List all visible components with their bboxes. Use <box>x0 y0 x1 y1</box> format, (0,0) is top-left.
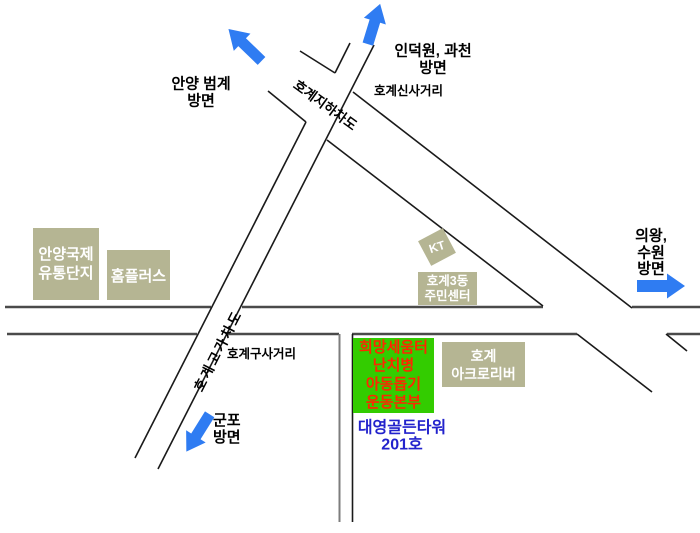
direction-label-anyang-beomgye: 안양 범계 방면 <box>171 77 230 110</box>
direction-label-uiwang-suwon: 의왕, 수원 방면 <box>627 228 676 278</box>
arrow-up-indeogwon-icon <box>357 1 391 48</box>
destination-address: 대영골든타워 201호 <box>358 421 446 454</box>
directions-map: 안양 범계 방면 인덕원, 과천 방면 의왕, 수원 방면 군포 방면 호계신사… <box>0 0 700 533</box>
building-kt-label: KT <box>427 238 447 256</box>
building-anyang-intl-complex: 안양국제 유통단지 <box>33 228 99 300</box>
building-homeplus: 홈플러스 <box>107 250 170 300</box>
direction-label-indeogwon-gwacheon: 인덕원, 과천 방면 <box>394 44 471 77</box>
direction-label-gunpo: 군포 방면 <box>213 413 241 446</box>
destination-box: 희망세움터 난치병 아동돕기 운동본부 <box>353 338 434 413</box>
road-vertical-street <box>340 334 353 522</box>
label-hogye-gusa-intersection: 호계구사거리 <box>227 347 296 361</box>
building-hogye-acroriver: 호계 아크로리버 <box>442 342 525 387</box>
arrow-up-left-anyang-icon <box>220 20 270 69</box>
road-network <box>0 0 700 533</box>
label-hogye-sinsa-intersection: 호계신사거리 <box>374 84 443 98</box>
building-hogye3dong-center: 호계3동 주민센터 <box>418 272 477 305</box>
